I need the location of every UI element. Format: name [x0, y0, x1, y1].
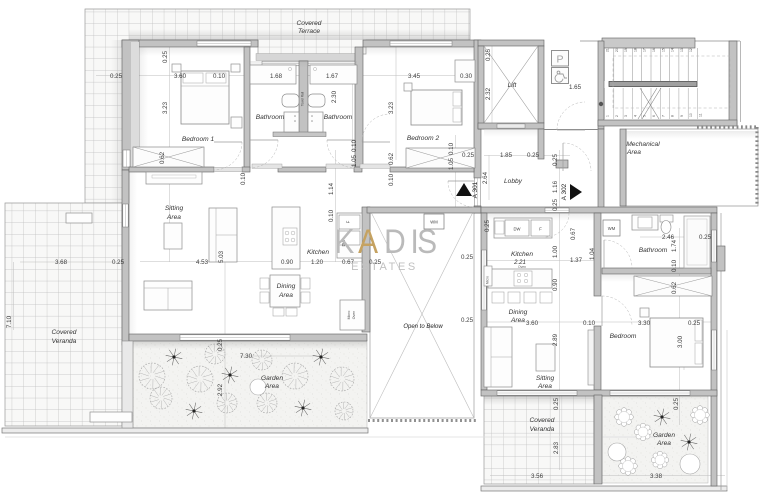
svg-text:0.25: 0.25	[162, 50, 169, 63]
svg-text:0.25: 0.25	[699, 234, 712, 241]
svg-text:1.67: 1.67	[326, 73, 339, 80]
svg-text:Bedroom 1: Bedroom 1	[182, 136, 215, 143]
svg-text:0.25: 0.25	[552, 198, 559, 211]
svg-text:20: 20	[615, 48, 619, 52]
svg-text:P: P	[556, 54, 563, 66]
svg-text:0.25: 0.25	[552, 153, 559, 166]
svg-text:0.62: 0.62	[388, 152, 395, 165]
svg-text:9: 9	[680, 115, 684, 117]
svg-text:2: 2	[615, 115, 619, 117]
svg-text:13: 13	[680, 48, 684, 52]
svg-text:1.05: 1.05	[351, 154, 358, 167]
svg-text:Oven: Oven	[352, 311, 356, 320]
svg-text:1.00: 1.00	[552, 245, 559, 258]
svg-text:4: 4	[633, 115, 637, 117]
svg-text:Garden: Garden	[653, 432, 675, 439]
svg-text:0.25: 0.25	[527, 152, 540, 159]
svg-text:0.10: 0.10	[213, 73, 226, 80]
svg-text:DW: DW	[514, 227, 521, 232]
svg-text:2.83: 2.83	[553, 441, 560, 454]
svg-text:21: 21	[606, 48, 610, 52]
svg-text:0.10: 0.10	[328, 209, 335, 222]
svg-text:1.65: 1.65	[569, 84, 582, 91]
svg-text:Area: Area	[626, 149, 641, 156]
svg-text:Area: Area	[264, 383, 279, 390]
svg-text:3: 3	[624, 115, 628, 117]
svg-text:Bathroom: Bathroom	[324, 114, 353, 121]
svg-text:7.10: 7.10	[6, 315, 13, 328]
svg-text:0.10: 0.10	[240, 172, 247, 185]
svg-text:1.37: 1.37	[570, 257, 583, 264]
svg-text:S: S	[417, 222, 437, 260]
svg-text:0.25: 0.25	[553, 397, 560, 410]
svg-text:15: 15	[661, 48, 665, 52]
svg-text:Kitchen: Kitchen	[307, 249, 329, 256]
svg-text:2.92: 2.92	[217, 383, 224, 396]
svg-text:0.25: 0.25	[110, 73, 123, 80]
svg-text:1.05: 1.05	[448, 157, 455, 170]
svg-text:Veranda: Veranda	[52, 338, 77, 345]
svg-text:K: K	[334, 222, 354, 260]
svg-text:3.68: 3.68	[55, 259, 68, 266]
svg-text:0.10: 0.10	[388, 173, 395, 186]
svg-text:1.68: 1.68	[270, 73, 283, 80]
svg-text:F: F	[539, 227, 542, 232]
svg-text:2.32: 2.32	[485, 87, 492, 100]
svg-text:Micro: Micro	[486, 276, 490, 284]
svg-text:1.20: 1.20	[311, 259, 324, 266]
svg-text:14: 14	[671, 48, 675, 52]
svg-text:1.16: 1.16	[552, 180, 559, 193]
svg-text:0.25: 0.25	[461, 254, 474, 261]
svg-text:1: 1	[606, 115, 610, 117]
svg-text:0.25: 0.25	[673, 397, 680, 410]
svg-text:0.90: 0.90	[552, 278, 559, 291]
svg-text:0.10: 0.10	[351, 139, 358, 152]
svg-text:0.10: 0.10	[583, 320, 596, 327]
svg-text:1.04: 1.04	[589, 247, 596, 260]
svg-text:ESTATES: ESTATES	[351, 261, 418, 273]
svg-text:A: A	[358, 222, 379, 260]
svg-text:5.03: 5.03	[218, 250, 225, 263]
svg-text:12: 12	[689, 48, 693, 52]
svg-text:Micro: Micro	[347, 311, 351, 320]
svg-text:Dining: Dining	[277, 283, 296, 290]
svg-text:0.62: 0.62	[159, 151, 166, 164]
svg-text:18: 18	[633, 48, 637, 52]
svg-text:3.60: 3.60	[526, 320, 539, 327]
svg-text:2.64: 2.64	[482, 171, 489, 184]
svg-text:17: 17	[643, 48, 647, 52]
svg-text:3.23: 3.23	[388, 101, 395, 114]
svg-text:3.00: 3.00	[677, 335, 684, 348]
svg-text:0.10: 0.10	[448, 142, 455, 155]
svg-text:3.38: 3.38	[650, 473, 663, 480]
svg-text:2.21: 2.21	[513, 260, 526, 266]
svg-text:Area: Area	[278, 292, 293, 299]
svg-text:Kitchen: Kitchen	[511, 251, 533, 258]
svg-text:7.30: 7.30	[240, 353, 253, 360]
svg-text:3.30: 3.30	[638, 320, 651, 327]
svg-text:Lobby: Lobby	[504, 178, 523, 185]
svg-text:Bedroom 2: Bedroom 2	[407, 135, 440, 142]
svg-text:2.30: 2.30	[331, 90, 338, 103]
svg-text:11: 11	[699, 113, 703, 117]
svg-text:WM: WM	[608, 226, 616, 231]
svg-text:0.30: 0.30	[460, 73, 473, 80]
svg-text:0.67: 0.67	[570, 227, 577, 240]
svg-text:Covered: Covered	[297, 20, 322, 27]
svg-text:0.25: 0.25	[688, 320, 701, 327]
svg-text:0.10: 0.10	[671, 259, 678, 272]
svg-text:Covered: Covered	[52, 329, 77, 336]
svg-text:3.60: 3.60	[174, 73, 187, 80]
svg-text:Area: Area	[166, 214, 181, 221]
svg-text:Dining: Dining	[509, 309, 528, 316]
svg-text:0.25: 0.25	[484, 219, 491, 232]
svg-text:5: 5	[643, 115, 647, 117]
svg-text:Area: Area	[656, 440, 671, 447]
svg-text:D: D	[384, 222, 406, 260]
svg-text:Veranda: Veranda	[530, 426, 555, 433]
svg-text:Bedroom: Bedroom	[610, 333, 637, 340]
svg-text:Lift: Lift	[508, 82, 518, 89]
svg-text:0.25: 0.25	[462, 152, 475, 159]
svg-text:0.25: 0.25	[217, 338, 224, 351]
svg-text:3.56: 3.56	[531, 473, 544, 480]
svg-text:Open to Below: Open to Below	[403, 324, 443, 330]
svg-text:2.89: 2.89	[552, 333, 559, 346]
svg-text:Mechanical: Mechanical	[626, 141, 660, 148]
svg-text:3.23: 3.23	[162, 101, 169, 114]
svg-text:Terrace: Terrace	[298, 28, 320, 35]
svg-text:0.90: 0.90	[281, 259, 294, 266]
svg-text:1.74: 1.74	[671, 239, 678, 252]
svg-text:A 302: A 302	[561, 183, 568, 200]
svg-text:1.14: 1.14	[328, 182, 335, 195]
svg-text:19: 19	[624, 48, 628, 52]
svg-text:0.25: 0.25	[485, 48, 492, 61]
svg-text:Area: Area	[510, 317, 525, 324]
svg-text:Bathroom: Bathroom	[256, 114, 285, 121]
svg-text:4.53: 4.53	[196, 259, 209, 266]
svg-text:Bathroom: Bathroom	[639, 247, 668, 254]
svg-text:0.25: 0.25	[461, 317, 474, 324]
svg-text:Covered: Covered	[530, 417, 555, 424]
svg-text:6: 6	[652, 115, 656, 117]
svg-text:Area: Area	[537, 383, 552, 390]
svg-text:Towel Rail: Towel Rail	[301, 91, 305, 106]
svg-text:Sitting: Sitting	[536, 375, 555, 382]
svg-text:1.85: 1.85	[500, 152, 513, 159]
svg-text:10: 10	[689, 113, 693, 117]
svg-text:3.45: 3.45	[408, 73, 421, 80]
svg-text:0.62: 0.62	[671, 281, 678, 294]
svg-text:Garden: Garden	[261, 375, 283, 382]
svg-text:0.25: 0.25	[112, 259, 125, 266]
svg-text:2.46: 2.46	[662, 234, 675, 241]
svg-text:Sitting: Sitting	[165, 205, 184, 212]
svg-text:16: 16	[652, 48, 656, 52]
svg-text:A 301: A 301	[472, 181, 479, 198]
svg-text:7: 7	[661, 115, 665, 117]
svg-text:8: 8	[671, 115, 675, 117]
